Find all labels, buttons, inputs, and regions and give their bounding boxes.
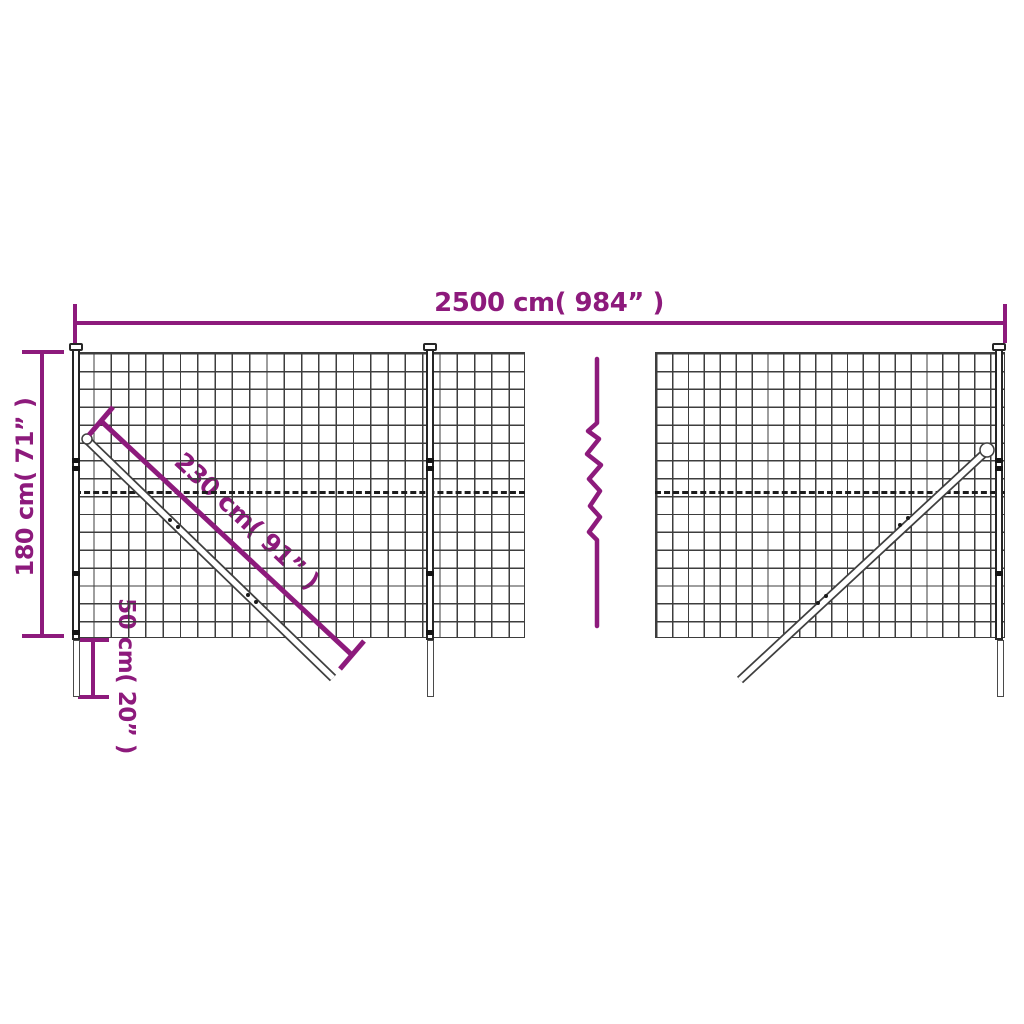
- brace-dimension-line: [89, 407, 364, 669]
- diagram-canvas: 2500 cm( 984” ) 180 cm( 71” ) 50 cm( 20”…: [0, 0, 1024, 1024]
- diagram-vector-overlay: [0, 0, 1024, 1024]
- brace-right-connector: [980, 443, 994, 457]
- brace-left: [82, 434, 333, 678]
- brace-right: [740, 443, 994, 680]
- break-line: [587, 359, 601, 626]
